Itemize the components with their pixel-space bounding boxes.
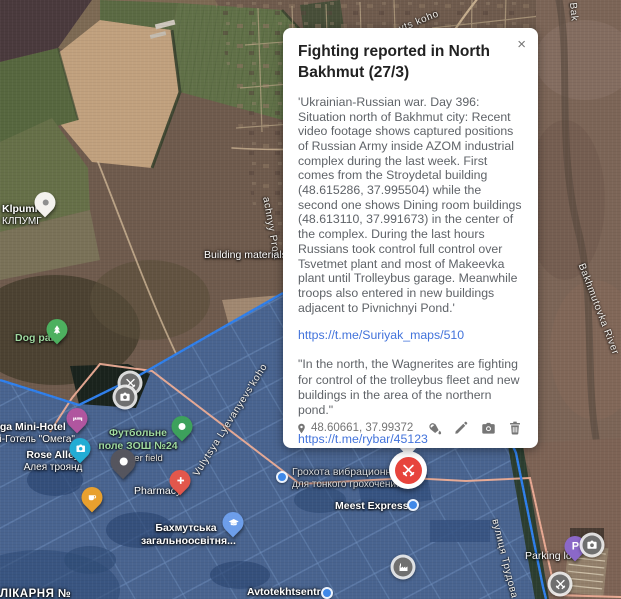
hotel-pin[interactable] [67,408,88,429]
grohota-dot[interactable] [276,471,288,483]
map-label-grohota: Грохота вибрационн... для тонкого грохоч… [292,466,404,492]
popup-actions [425,419,524,437]
tree-icon [52,324,63,335]
delete-trash-icon[interactable] [506,419,524,437]
map-label-mini-hotel: ega Mini-Hotel ні-Готель "Омега" [0,421,75,447]
cross-icon [175,476,185,486]
factory-icon [394,558,413,577]
camera-icon [74,443,86,455]
close-icon[interactable]: × [515,35,528,54]
parking-p-icon: P [571,541,578,553]
dog-park-pin[interactable] [47,319,68,340]
school-pin[interactable] [223,512,244,533]
map-label-likarnya: ЛІКАРНЯ № [0,587,71,599]
avtotekhtsentr-dot[interactable] [321,587,333,599]
style-paint-bucket-icon[interactable] [425,419,443,437]
battle-badge-2[interactable] [548,572,573,597]
pharmacy-pin[interactable] [170,470,191,491]
coffee-cup-icon [87,492,98,503]
klpumh-pin[interactable] [35,192,56,213]
camera-icon [583,536,602,555]
bed-icon [71,413,83,425]
photo-badge-2[interactable] [580,533,605,558]
camera-icon [116,388,135,407]
popup-quote: "In the north, the Wagnerites are fighti… [298,357,522,418]
unnamed-pin[interactable] [111,449,136,474]
camera-icon[interactable] [479,419,497,437]
edit-pencil-icon[interactable] [452,419,470,437]
rose-alley-pin[interactable] [70,438,91,459]
location-pin-icon [296,422,307,435]
popup-footer: 48.60661, 37.99372 [296,419,524,437]
factory-badge[interactable] [391,555,416,580]
crossed-swords-icon [395,457,422,484]
map-label-avtotekhtsentr: Avtotekhtsentr [247,586,321,599]
soccer-field-pin[interactable] [172,416,193,437]
popup-description: 'Ukrainian-Russian war. Day 396: Situati… [298,95,522,316]
graduation-cap-icon [227,517,239,529]
popup-title: Fighting reported in North Bakhmut (27/3… [298,42,523,84]
map-label-school: Бахмутська загальноосвітня... [141,522,231,548]
popup-tail [399,447,417,457]
crossed-swords-icon [551,575,570,594]
street-label-river-top: Bak [567,2,580,22]
info-popup: Fighting reported in North Bakhmut (27/3… [283,28,538,448]
photo-badge-1[interactable] [113,385,138,410]
coordinates: 48.60661, 37.99372 [296,422,413,435]
map-app: vts koho Bak Bakhmutovka River Vulytsya … [0,0,621,599]
cafe-pin[interactable] [82,487,103,508]
map-label-meest-express: Meest Express [335,500,409,513]
telegram-link-suriyak[interactable]: https://t.me/Suriyak_maps/510 [298,328,522,342]
meest-express-dot[interactable] [407,499,419,511]
